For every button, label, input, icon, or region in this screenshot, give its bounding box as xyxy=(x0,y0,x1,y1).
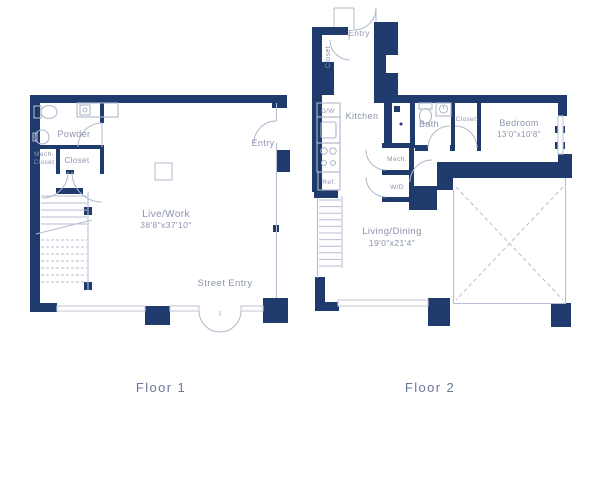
room-label-closet: Closet xyxy=(64,156,89,165)
structural-column xyxy=(155,163,172,180)
room-dims-living-dining: 19'0"x21'4" xyxy=(369,238,415,248)
room-label-powder: Powder xyxy=(58,129,91,139)
room-label-entry: Entry xyxy=(348,28,370,38)
room-label-living-dining: Living/Dining xyxy=(362,226,422,237)
entry-closet-door-arc xyxy=(330,40,350,60)
mech-door-arc xyxy=(366,150,386,170)
bath-door-arc xyxy=(428,126,450,148)
floor2-thin-walls xyxy=(318,8,567,306)
room-label-kitchen: Kitchen xyxy=(346,111,379,121)
room-label-live-work: Live/Work xyxy=(142,209,190,220)
floor1-stairs xyxy=(36,192,92,290)
room-label-entry-closet: Closet xyxy=(325,46,332,68)
closet-door-arc xyxy=(72,172,102,202)
floor2-stairs xyxy=(319,196,342,268)
bath-sink-icon xyxy=(436,103,451,116)
room-label-mech-closet-2: Closet xyxy=(34,159,55,166)
floor2-label: Floor 2 xyxy=(405,380,455,395)
room-dims-live-work: 38'8"x37'10" xyxy=(140,220,191,230)
floor2-plan: Entry Closet D/W Kitchen Ref. Mech. W/D … xyxy=(312,8,572,395)
room-label-mech-closet-1: Mech. xyxy=(34,151,54,158)
floor1-plan: Powder Mech. Closet Closet Entry Live/Wo… xyxy=(30,95,290,395)
room-label-closet: Closet xyxy=(456,116,477,123)
street-door-left-arc xyxy=(199,311,220,332)
floorplan-canvas: Powder Mech. Closet Closet Entry Live/Wo… xyxy=(0,0,600,490)
room-label-bath: Bath xyxy=(419,119,439,129)
window xyxy=(170,306,199,311)
window xyxy=(241,306,263,311)
room-label-ref: Ref. xyxy=(322,179,336,186)
room-label-street-entry: Street Entry xyxy=(198,278,253,289)
bedroom-window xyxy=(558,116,563,154)
floor2-labels: Entry Closet D/W Kitchen Ref. Mech. W/D … xyxy=(321,28,541,395)
shower-icon xyxy=(394,106,403,126)
stair-break-line xyxy=(36,220,92,234)
floorplan-svg: Powder Mech. Closet Closet Entry Live/Wo… xyxy=(0,0,600,490)
closet-door-arc xyxy=(455,126,477,148)
living-window xyxy=(338,300,428,306)
floor1-label: Floor 1 xyxy=(136,380,186,395)
room-dims-bedroom: 13'0"x10'8" xyxy=(497,130,541,139)
room-label-entry: Entry xyxy=(251,138,274,148)
floor1-labels: Powder Mech. Closet Closet Entry Live/Wo… xyxy=(34,129,275,395)
window xyxy=(57,306,145,311)
entry-door-arc xyxy=(354,8,376,30)
street-door-right-arc xyxy=(220,311,241,332)
water-heater-icon xyxy=(77,103,118,117)
wd-door-arc xyxy=(366,177,386,197)
room-label-wd: W/D xyxy=(390,184,404,191)
room-label-mech: Mech. xyxy=(387,156,407,163)
floor2-walls xyxy=(312,22,572,327)
room-label-dw: D/W xyxy=(321,108,335,115)
mech-closet-door-arc xyxy=(42,172,68,198)
room-label-bedroom: Bedroom xyxy=(499,118,538,128)
